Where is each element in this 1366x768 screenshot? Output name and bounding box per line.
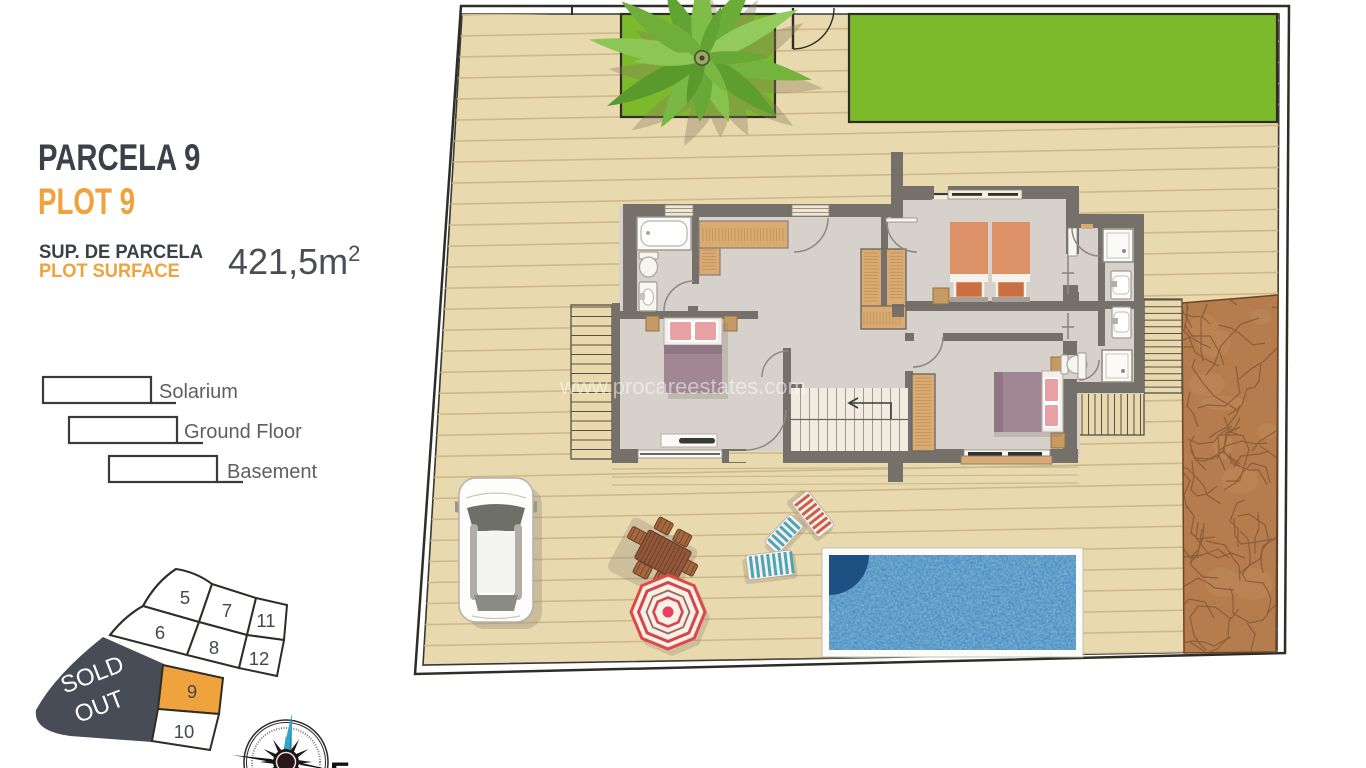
svg-text:11: 11	[256, 610, 275, 631]
svg-text:9: 9	[187, 681, 197, 702]
svg-text:E: E	[330, 757, 350, 768]
svg-text:PARCELA 9: PARCELA 9	[38, 138, 200, 179]
svg-text:12: 12	[249, 648, 270, 669]
svg-text:Basement: Basement	[227, 461, 317, 483]
svg-text:6: 6	[155, 622, 165, 643]
svg-text:7: 7	[222, 600, 232, 621]
svg-text:8: 8	[209, 637, 219, 658]
svg-text:PLOT SURFACE: PLOT SURFACE	[39, 260, 180, 281]
svg-text:10: 10	[174, 721, 195, 742]
svg-text:421,5m2: 421,5m2	[228, 241, 360, 282]
svg-text:PLOT 9: PLOT 9	[38, 180, 135, 222]
svg-text:www.procareestates.com: www.procareestates.com	[559, 374, 806, 399]
svg-text:Solarium: Solarium	[159, 381, 238, 403]
svg-text:5: 5	[180, 587, 190, 608]
svg-text:Ground Floor: Ground Floor	[184, 421, 302, 443]
